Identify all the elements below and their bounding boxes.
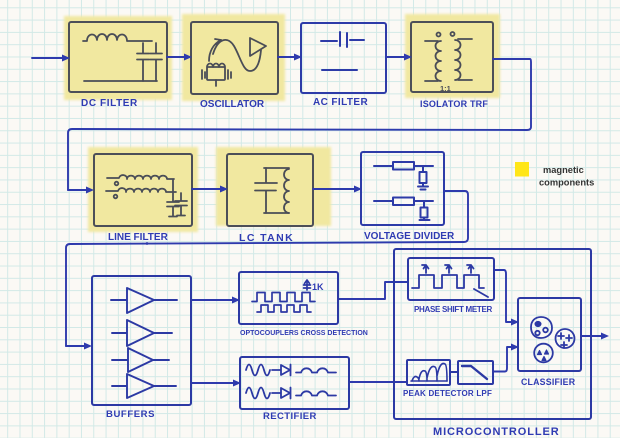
svg-text:OPTOCOUPLERS CROSS DETECTION: OPTOCOUPLERS CROSS DETECTION [240,330,368,337]
svg-text:LC TANK: LC TANK [239,232,294,244]
svg-text:OSCILLATOR: OSCILLATOR [200,99,265,110]
svg-text:RECTIFIER: RECTIFIER [263,411,317,422]
svg-text:PHASE SHIFT METER: PHASE SHIFT METER [414,305,493,314]
svg-text:magnetic: magnetic [543,165,584,175]
svg-text:BUFFERS: BUFFERS [106,409,155,420]
svg-text:AC FILTER: AC FILTER [313,97,368,108]
svg-text:CLASSIFIER: CLASSIFIER [521,377,576,387]
svg-text:ISOLATOR TRF: ISOLATOR TRF [420,99,488,109]
svg-text:MICROCONTROLLER: MICROCONTROLLER [433,426,560,438]
svg-text:1:1: 1:1 [440,84,451,93]
svg-text:components: components [539,178,594,188]
svg-text:LINE FILTER: LINE FILTER [108,232,169,243]
svg-text:DC FILTER: DC FILTER [81,98,138,109]
svg-text:1K: 1K [312,282,324,292]
svg-text:VOLTAGE DIVIDER: VOLTAGE DIVIDER [364,231,455,242]
svg-text:PEAK DETECTOR LPF: PEAK DETECTOR LPF [403,389,492,398]
